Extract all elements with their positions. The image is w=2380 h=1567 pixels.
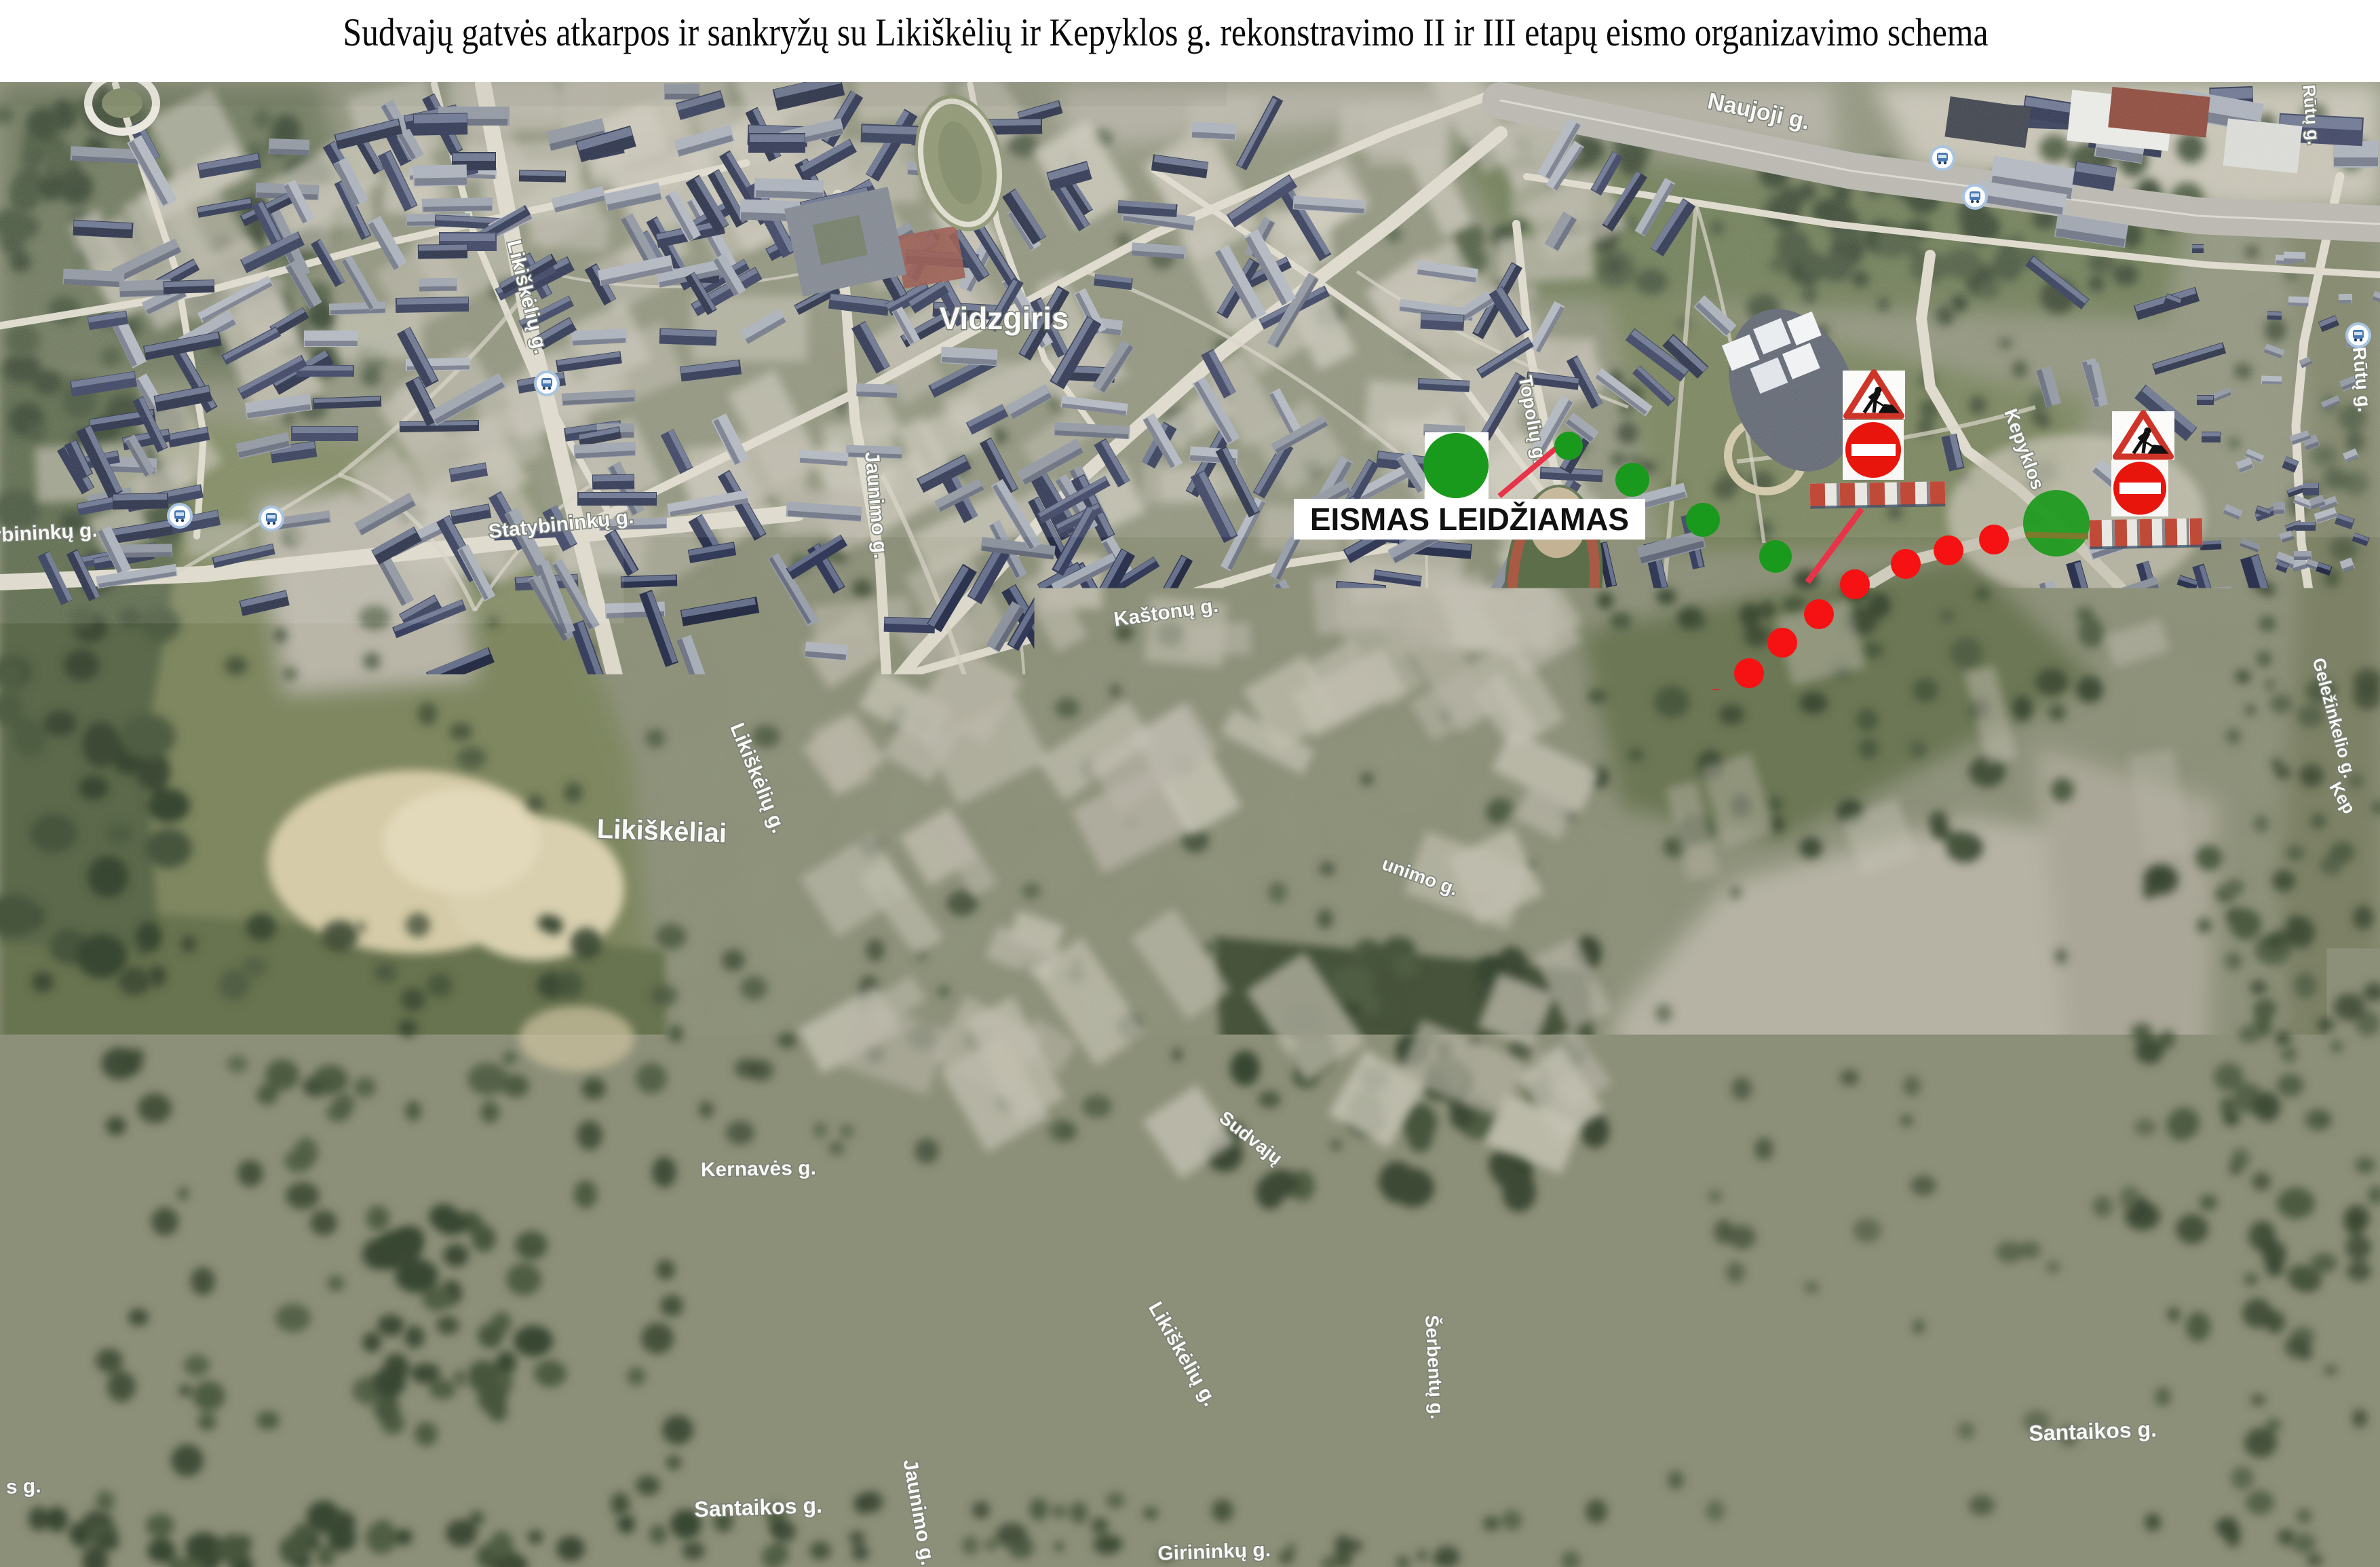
svg-text:Girininkų g.: Girininkų g. (1157, 1538, 1271, 1565)
svg-text:s g.: s g. (5, 1475, 41, 1498)
svg-text:EISMAS LEIDŽIAMAS: EISMAS LEIDŽIAMAS (1310, 502, 1629, 537)
svg-text:Kernavės g.: Kernavės g. (701, 1157, 817, 1182)
svg-text:Vidzgiris: Vidzgiris (940, 301, 1069, 336)
svg-text:EISMAS LEIDŽIAMAS: EISMAS LEIDŽIAMAS (1155, 1229, 1474, 1264)
svg-text:Santaikos g.: Santaikos g. (694, 1493, 823, 1522)
svg-text:Santaikos g.: Santaikos g. (2029, 1417, 2157, 1446)
svg-text:Sudvajų gatvės atkarpos ir san: Sudvajų gatvės atkarpos ir sankryžų su L… (343, 10, 1989, 54)
svg-text:Likiškėliai: Likiškėliai (596, 814, 727, 849)
